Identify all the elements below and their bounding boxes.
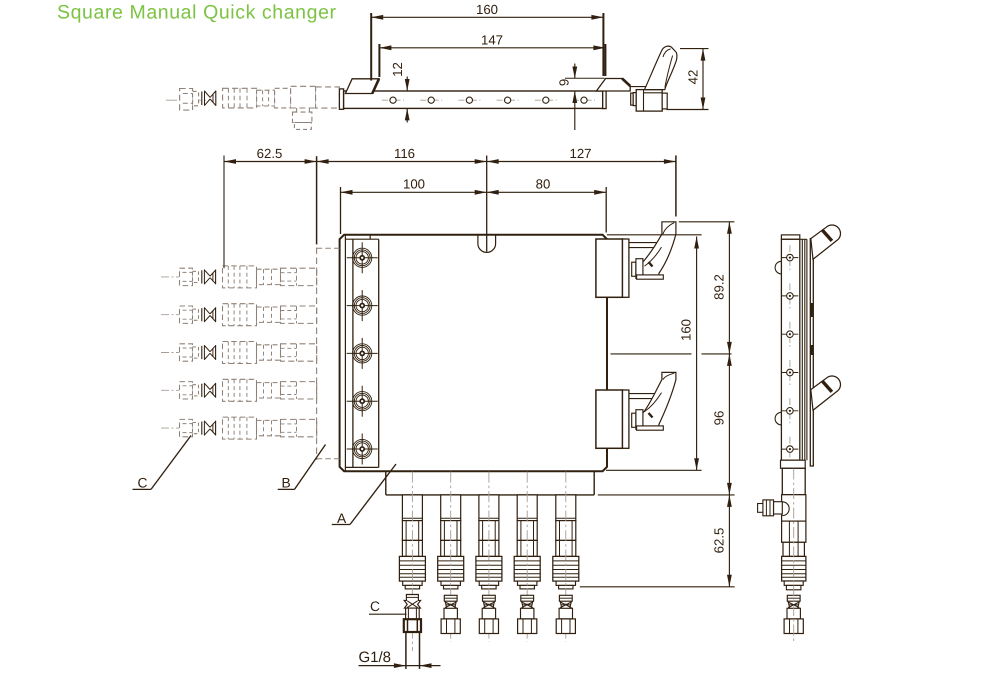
svg-text:100: 100 [403, 177, 425, 192]
svg-text:A: A [337, 511, 347, 526]
svg-text:12: 12 [390, 62, 405, 77]
svg-text:42: 42 [686, 70, 701, 85]
svg-text:C: C [138, 476, 148, 491]
svg-text:62.5: 62.5 [257, 146, 283, 161]
svg-text:89.2: 89.2 [712, 274, 727, 300]
svg-text:B: B [282, 476, 291, 491]
svg-text:96: 96 [712, 411, 727, 426]
svg-text:Square Manual Quick changer: Square Manual Quick changer [57, 2, 337, 24]
svg-text:160: 160 [476, 2, 498, 17]
svg-text:147: 147 [481, 33, 503, 48]
svg-text:116: 116 [394, 146, 415, 161]
svg-text:160: 160 [679, 319, 694, 341]
svg-text:127: 127 [569, 146, 591, 161]
svg-text:80: 80 [536, 177, 551, 192]
svg-text:9: 9 [557, 79, 572, 86]
svg-text:62.5: 62.5 [712, 528, 727, 554]
svg-text:G1/8: G1/8 [359, 649, 392, 666]
svg-text:C: C [370, 599, 380, 614]
